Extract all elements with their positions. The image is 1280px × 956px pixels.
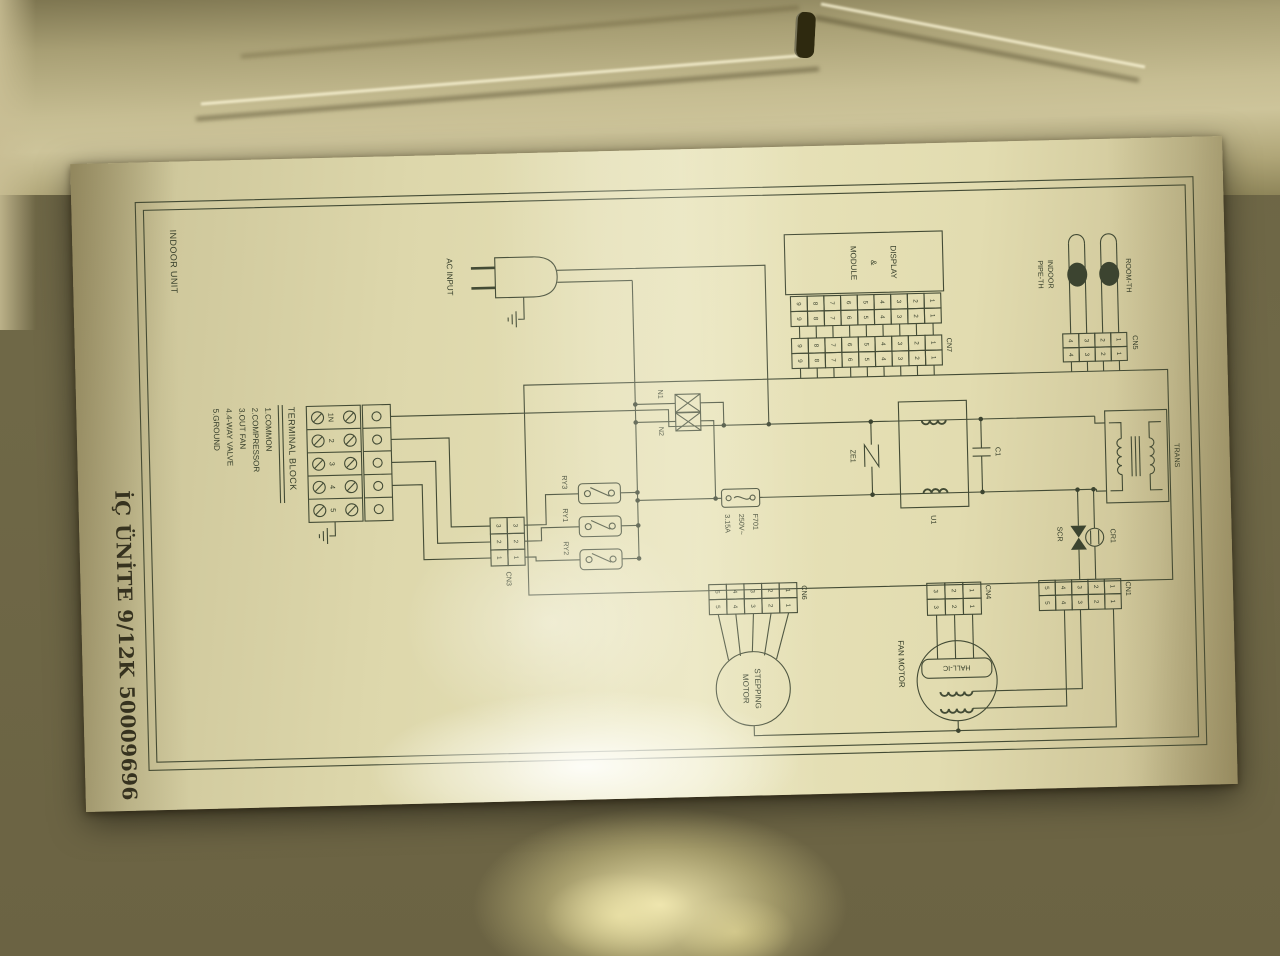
svg-text:9: 9	[795, 302, 802, 306]
svg-text:2: 2	[512, 540, 519, 544]
cn1-label: CN1	[1124, 581, 1133, 596]
scr-device: SCR	[1055, 489, 1088, 580]
plug-earth-icon	[508, 311, 516, 327]
svg-text:1: 1	[968, 604, 975, 608]
chassis-ridge	[201, 54, 809, 106]
svg-text:1: 1	[495, 556, 502, 560]
ry2-label: RY2	[562, 541, 571, 555]
svg-text:1: 1	[929, 341, 936, 345]
terminal-1n: 1N	[326, 413, 335, 422]
cn5-label: CN5	[1131, 335, 1140, 350]
trans-label: TRANS	[1172, 443, 1182, 468]
cn5-connector: 11223344	[1063, 332, 1128, 362]
fan-winding	[940, 691, 972, 696]
display-module: DISPLAY & MODULE	[784, 231, 943, 295]
svg-text:3: 3	[1083, 353, 1090, 357]
fuse-current: 3.15A	[723, 514, 732, 533]
ground-wire	[329, 522, 335, 536]
svg-text:3: 3	[1076, 585, 1083, 589]
fan-motor-label: FAN MOTOR	[896, 640, 906, 688]
svg-text:8: 8	[812, 344, 819, 348]
cn3-connector: 321321	[490, 517, 525, 566]
svg-text:5: 5	[862, 315, 869, 319]
chassis-groove	[241, 6, 799, 59]
svg-text:3: 3	[494, 524, 501, 528]
svg-text:2: 2	[950, 605, 957, 609]
photo-of-wiring-diagram: TRANS C1	[0, 0, 1280, 956]
chassis-ridge	[821, 3, 1146, 69]
fuse-voltage: 250V~	[737, 514, 747, 535]
svg-text:4: 4	[1059, 586, 1066, 590]
svg-text:4: 4	[879, 342, 886, 346]
svg-text:1: 1	[929, 314, 936, 318]
cn6-label: CN6	[800, 585, 809, 600]
n1-label: N1	[656, 390, 665, 399]
noise-filter-n1-n2: N1 N2	[635, 388, 726, 500]
ry1-label: RY1	[561, 508, 570, 522]
svg-text:7: 7	[828, 316, 835, 320]
svg-text:2: 2	[913, 341, 920, 345]
svg-text:7: 7	[828, 301, 835, 305]
svg-text:3: 3	[895, 300, 902, 304]
legend-ground: 5.GROUND	[211, 409, 221, 452]
svg-text:3: 3	[932, 589, 939, 593]
display-line3: MODULE	[848, 246, 858, 280]
svg-text:1: 1	[1115, 338, 1122, 342]
relay-ry1: RY1	[524, 507, 639, 542]
svg-text:3: 3	[932, 605, 939, 609]
svg-text:9: 9	[796, 344, 803, 348]
svg-text:4: 4	[878, 300, 885, 304]
svg-text:6: 6	[846, 358, 853, 362]
svg-text:2: 2	[1092, 600, 1099, 604]
stepping-motor-label-1: STEPPING	[753, 668, 763, 709]
cn7-connector: 112233445566778899	[791, 335, 942, 369]
svg-text:3: 3	[896, 357, 903, 361]
svg-text:8: 8	[813, 359, 820, 363]
svg-text:5: 5	[1043, 586, 1050, 590]
legend-4way-valve: 4.4-WAY VALVE	[224, 408, 234, 466]
hall-ic-label: HALL-IC	[943, 663, 971, 673]
scr-label: SCR	[1055, 526, 1064, 541]
svg-text:5: 5	[1043, 601, 1050, 605]
svg-text:2: 2	[767, 604, 774, 608]
svg-text:2: 2	[912, 299, 919, 303]
svg-text:3: 3	[749, 604, 756, 608]
cn6-connector: 1122334455	[709, 583, 798, 615]
svg-text:4: 4	[731, 605, 738, 609]
svg-text:4: 4	[879, 315, 886, 319]
svg-text:7: 7	[829, 358, 836, 362]
ze1-label: ZE1	[848, 449, 857, 462]
svg-text:2: 2	[912, 314, 919, 318]
cn4-connector: 112233	[927, 582, 982, 615]
indoor-unit-text: INDOOR UNIT	[168, 230, 180, 294]
chassis-groove	[196, 67, 819, 121]
svg-text:7: 7	[829, 343, 836, 347]
fan-winding	[941, 708, 973, 713]
legend-compressor: 2.COMPRESSOR	[250, 408, 261, 473]
svg-text:3: 3	[1083, 339, 1090, 343]
terminal-wires	[391, 437, 491, 560]
svg-text:2: 2	[1092, 585, 1099, 589]
stepping-motor-label-2: MOTOR	[741, 674, 751, 704]
svg-text:1: 1	[1109, 600, 1116, 604]
svg-text:4: 4	[1067, 339, 1074, 343]
terminal-legend: TERMINAL BLOCK 1.COMMON 2.COMPRESSOR 3.O…	[211, 405, 298, 505]
legend-common: 1.COMMON	[263, 407, 273, 451]
svg-text:5: 5	[861, 300, 868, 304]
svg-text:4: 4	[880, 357, 887, 361]
svg-text:8: 8	[812, 317, 819, 321]
svg-text:2: 2	[766, 589, 773, 593]
ac-input-label: AC INPUT	[445, 258, 455, 296]
svg-text:8: 8	[811, 302, 818, 306]
svg-text:6: 6	[845, 301, 852, 305]
terminal-block: 1N 2 3 4 5	[306, 404, 393, 544]
u1-label: U1	[929, 515, 938, 524]
room-th-label: ROOM-TH	[1124, 258, 1134, 293]
junction-dots	[633, 391, 1102, 741]
svg-text:6: 6	[845, 316, 852, 320]
room-th-bead	[1099, 262, 1120, 286]
varistor-ze1: ZE1	[848, 422, 880, 496]
svg-text:1: 1	[784, 603, 791, 607]
ac-plug: AC INPUT	[445, 251, 769, 432]
terminal-5: 5	[329, 508, 338, 512]
svg-text:5: 5	[863, 357, 870, 361]
stepping-motor: STEPPING MOTOR	[714, 613, 791, 727]
svg-text:1: 1	[784, 588, 791, 592]
terminal-2: 2	[327, 439, 336, 443]
svg-text:5: 5	[863, 342, 870, 346]
wiring-diagram-sticker: TRANS C1	[70, 136, 1237, 812]
relay-ry2: RY2	[525, 540, 640, 572]
chassis-edge-highlight	[0, 0, 36, 330]
pipe-th-label-1: INDOOR	[1046, 260, 1056, 289]
svg-text:3: 3	[749, 589, 756, 593]
svg-text:3: 3	[896, 342, 903, 346]
svg-text:9: 9	[795, 317, 802, 321]
svg-text:2: 2	[950, 589, 957, 593]
cr1-label: CR1	[1108, 528, 1117, 543]
legend-out-fan: 3.OUT FAN	[237, 408, 247, 450]
chassis-groove	[815, 16, 1140, 83]
svg-text:4: 4	[1060, 601, 1067, 605]
svg-text:6: 6	[846, 343, 853, 347]
chassis-slot	[794, 12, 816, 59]
cn7-label: CN7	[945, 338, 954, 353]
terminal-3: 3	[328, 462, 337, 466]
fuse-f701: F701 250V~ 3.15A	[721, 488, 760, 535]
svg-text:3: 3	[1076, 600, 1083, 604]
n2-label: N2	[657, 427, 666, 436]
earth-ground-icon	[319, 528, 327, 544]
svg-text:1: 1	[930, 356, 937, 360]
ry3-label: RY3	[560, 475, 569, 489]
svg-text:9: 9	[796, 359, 803, 363]
svg-text:2: 2	[1099, 352, 1106, 356]
fan-motor: HALL-IC FAN MOTOR	[896, 614, 999, 722]
svg-text:4: 4	[731, 590, 738, 594]
terminal-block-heading: TERMINAL BLOCK	[286, 407, 298, 491]
cn3-label: CN3	[504, 571, 513, 586]
svg-text:4: 4	[1067, 353, 1074, 357]
pipe-th-label-2: PIPE-TH	[1036, 260, 1046, 289]
pipe-th-bead	[1067, 262, 1088, 286]
cn4-label: CN4	[984, 585, 993, 600]
svg-text:3: 3	[895, 315, 902, 319]
svg-text:2: 2	[495, 540, 502, 544]
svg-text:1: 1	[928, 299, 935, 303]
schematic-svg: TRANS C1	[70, 136, 1237, 812]
svg-text:3: 3	[511, 524, 518, 528]
diagram-natural-orientation: TRANS C1	[70, 136, 1237, 812]
pcb-outline	[524, 369, 1173, 595]
fuse-name: F701	[751, 513, 760, 530]
svg-text:1: 1	[512, 556, 519, 560]
capacitor-c1: C1	[972, 418, 1004, 492]
svg-text:5: 5	[713, 590, 720, 594]
cn1-connector: 1122334455	[1039, 579, 1122, 611]
svg-text:1: 1	[968, 588, 975, 592]
svg-text:2: 2	[1099, 338, 1106, 342]
cn1-wires	[752, 609, 1117, 736]
terminal-4: 4	[328, 485, 337, 489]
display-pin-strip: 112233445566778899	[790, 293, 941, 327]
svg-text:2: 2	[913, 356, 920, 360]
svg-text:1: 1	[1108, 585, 1115, 589]
display-line2: &	[869, 260, 878, 266]
display-line1: DISPLAY	[888, 245, 898, 279]
svg-text:5: 5	[714, 605, 721, 609]
svg-text:1: 1	[1115, 352, 1122, 356]
c1-label: C1	[993, 447, 1002, 456]
